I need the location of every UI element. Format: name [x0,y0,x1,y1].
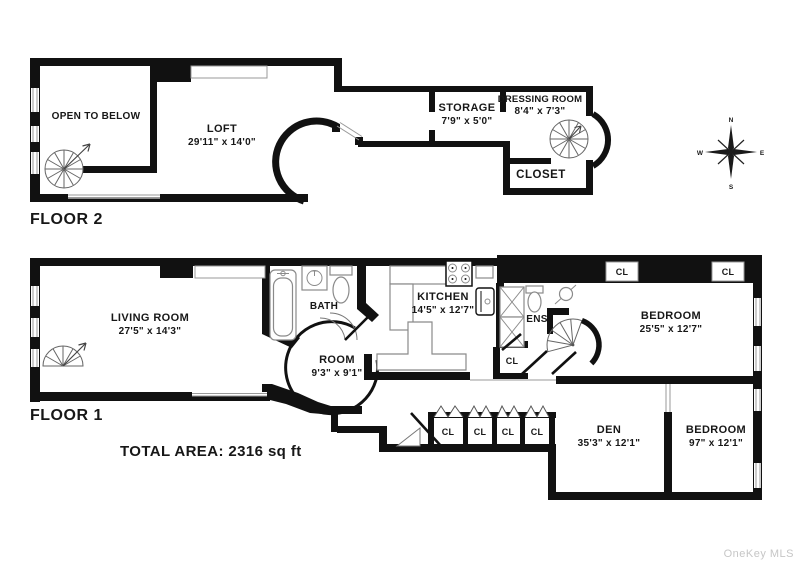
spiral-staircase-icon [45,144,90,188]
compass-north-label: N [729,117,734,124]
room-label-storage: STORAGE [439,102,496,114]
floor2-bottom-window [68,194,160,199]
toilet-icon [330,266,352,303]
room-label-dressing-room: DRESSING ROOM [498,94,582,105]
floor2-label: FLOOR 2 [30,211,103,228]
room-dims-loft: 29'11" x 14'0" [188,137,256,148]
closet-abbr-label: CL [502,427,515,437]
floorplan-page: OPEN TO BELOW LOFT 29'11" x 14'0" STORAG… [0,0,800,564]
closet-abbr-label: CL [531,427,544,437]
spiral-staircase-icon [547,319,599,363]
floor1-label: FLOOR 1 [30,407,103,424]
closet-abbr-label: CL [616,267,629,277]
closet-abbr-label: CL [506,356,519,366]
room-dims-storage: 7'9" x 5'0" [442,116,493,127]
shower-icon [500,287,524,347]
room-label-room: ROOM [319,354,355,366]
bifold-doors-icon [434,406,549,417]
room-dims-bedroom2: 97" x 12'1" [689,438,743,449]
room-dims-room: 9'3" x 9'1" [312,368,363,379]
total-area-label: TOTAL AREA: 2316 sq ft [120,443,302,460]
floorplan-drawing: OPEN TO BELOW LOFT 29'11" x 14'0" STORAG… [0,0,800,564]
floor1-railing [195,266,265,278]
room-label-bedroom1: BEDROOM [641,310,701,322]
closet-box: CL [712,262,744,281]
floor1-left-windows [31,286,39,367]
floor1-bottom-window [192,392,267,397]
room-dims-kitchen: 14'5" x 12'7" [412,305,475,316]
floor2-left-windows [31,88,39,174]
fridge-icon [476,288,494,315]
den-bedroom-divider-opening [666,384,670,412]
room-dims-den: 35'3" x 12'1" [578,438,641,449]
floor2-walls [30,58,593,202]
room-label-bath: BATH [310,301,338,312]
room-label-living: LIVING ROOM [111,312,189,324]
room-dims-bedroom1: 25'5" x 12'7" [640,324,703,335]
bathtub-icon [270,270,296,340]
floor1-plan: CL CL [30,255,762,500]
floor2-curved-wall [276,121,338,201]
floor2-railing [191,66,267,78]
compass-east-label: E [760,150,765,157]
room-label-kitchen: KITCHEN [417,291,469,303]
room-label-bedroom2: BEDROOM [686,424,746,436]
closet-abbr-label: CL [722,267,735,277]
floor2-stair-bump-wall [593,114,608,166]
ens-sink-icon [555,285,576,304]
room-label-open-to-below: OPEN TO BELOW [52,111,141,122]
spiral-staircase-icon [550,120,588,158]
closet-abbr-label: CL [442,427,455,437]
ens-toilet-icon [526,286,543,312]
room-label-loft: LOFT [207,123,237,135]
floor2-plan: OPEN TO BELOW LOFT 29'11" x 14'0" STORAG… [30,58,608,228]
semicircle-staircase-icon [43,343,86,366]
room-label-ens: ENS [526,314,547,325]
room-dims-dressing-room: 8'4" x 7'3" [515,106,566,117]
kitchen-counter [377,266,493,370]
sink-icon [302,266,327,290]
door-leaf [522,351,547,374]
watermark-label: OneKey MLS [724,548,794,560]
compass-west-label: W [697,150,704,157]
stove-icon [446,261,472,286]
room-label-closet: CLOSET [516,169,566,181]
closet-box: CL [606,262,638,281]
compass-rose-icon: N S E W [697,117,765,191]
compass-south-label: S [729,184,734,191]
door-leaf [552,352,576,374]
room-dims-living: 27'5" x 14'3" [119,326,182,337]
closet-abbr-label: CL [474,427,487,437]
room-label-den: DEN [597,424,621,436]
